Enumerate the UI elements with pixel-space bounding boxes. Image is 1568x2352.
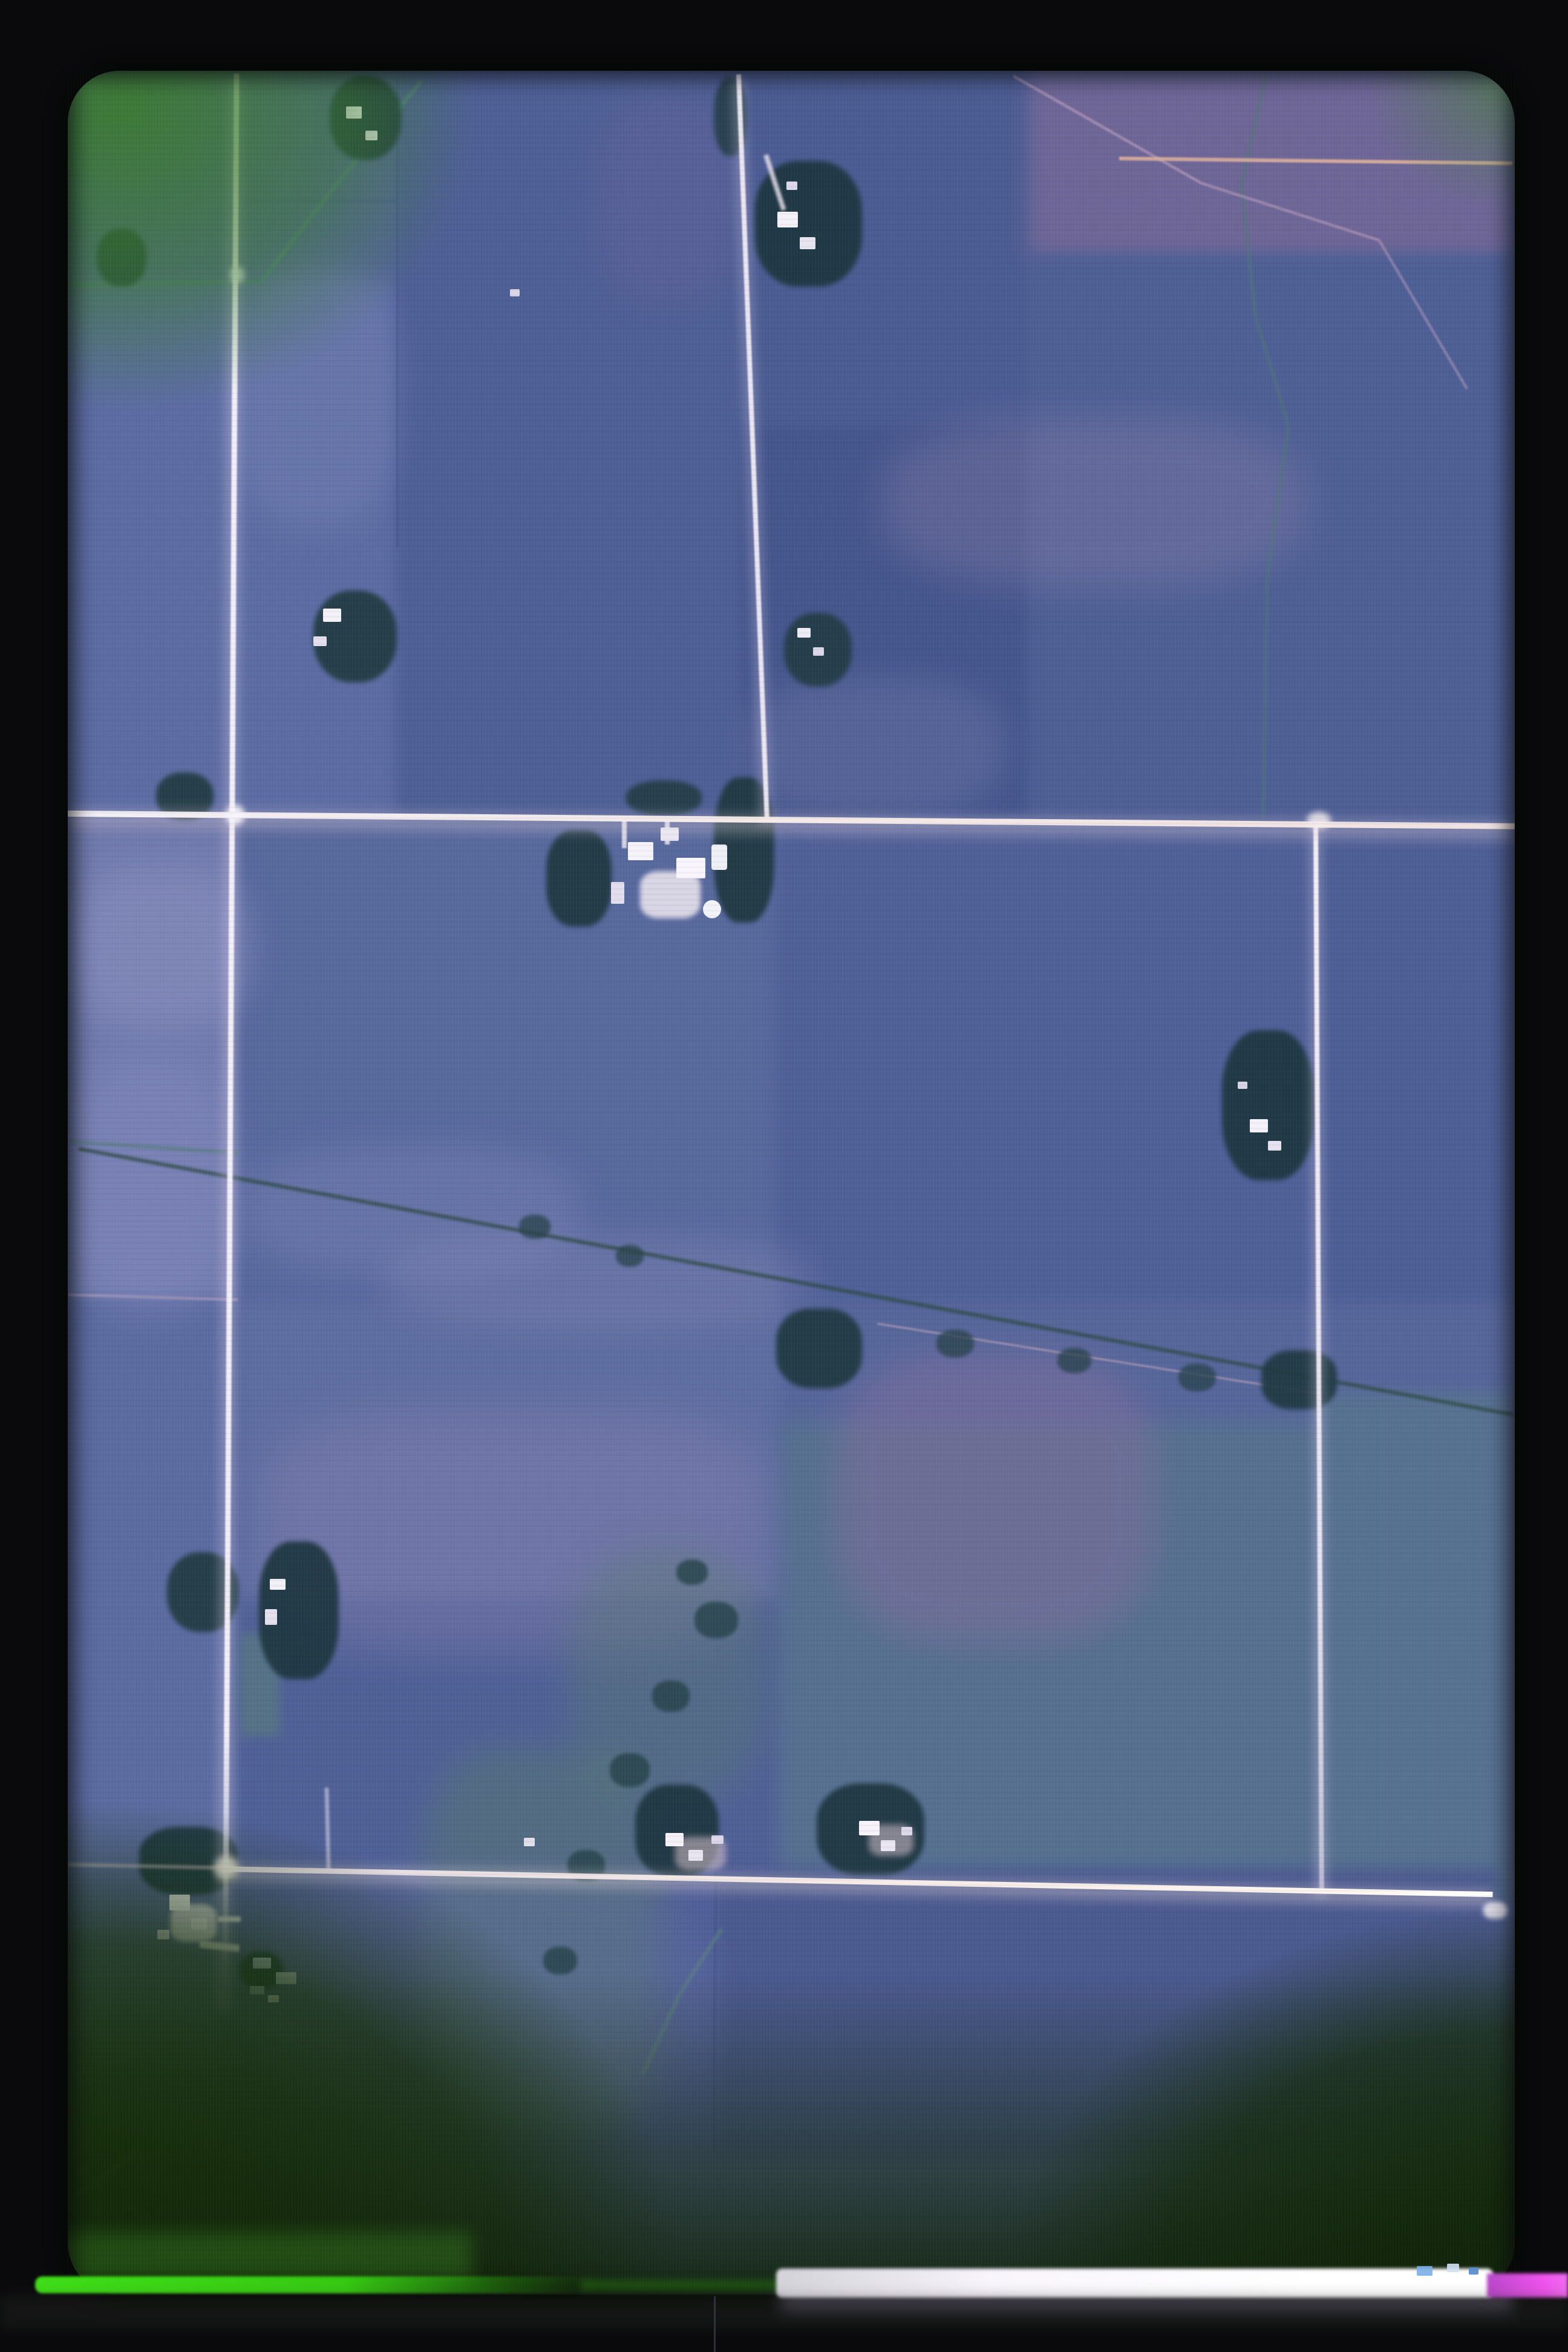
- mount-slit-line: [714, 2296, 716, 2352]
- trees-corr-3: [610, 1753, 650, 1787]
- cloud-mid: [387, 1234, 811, 1325]
- field-right-band: [1319, 821, 1514, 1302]
- light-approach: [744, 678, 1004, 817]
- filmedge-speck-blue-2: [1447, 2264, 1459, 2272]
- trees-corr-6: [676, 1560, 708, 1585]
- trees-corr-1: [694, 1602, 738, 1638]
- aerial-photo-frame: [68, 71, 1515, 2295]
- trees-diag-d3: [936, 1330, 974, 1357]
- junction-west-mid: [226, 805, 244, 825]
- mount-wedge-below: [0, 2295, 1568, 2329]
- cloud-left-2: [73, 1053, 230, 1313]
- farm-right-bldg-2: [1268, 1141, 1281, 1151]
- corridor-base2: [569, 1549, 768, 1803]
- filmedge-strip-magenta: [1487, 2273, 1568, 2298]
- farm-main-silo: [711, 844, 727, 870]
- farm-2-bldg-2: [800, 237, 815, 249]
- filmedge-strip-green-dim: [581, 2279, 780, 2292]
- farm-main-house: [676, 858, 705, 878]
- trees-diag-d2: [616, 1245, 644, 1267]
- slide-canvas: [0, 0, 1568, 2352]
- pink-topright: [883, 417, 1307, 587]
- farm-5-bldg-1: [797, 628, 811, 638]
- vignette-topleft: [68, 71, 733, 645]
- driveway-farm4a: [622, 820, 627, 848]
- trees-farm-main-n: [626, 780, 702, 815]
- trees-farm-2: [754, 161, 862, 287]
- haze-green-left: [68, 2232, 472, 2281]
- farm-7-bldg-2: [265, 1609, 277, 1625]
- junction-east-top: [1307, 812, 1331, 829]
- filmedge-speck-blue-3: [1469, 2267, 1478, 2275]
- farm-right-bldg-1: [1250, 1119, 1268, 1132]
- trees-farm-right: [1222, 1030, 1314, 1180]
- filmedge-speck-blue-1: [1417, 2266, 1432, 2276]
- farm-right-bldg-3: [1238, 1082, 1247, 1089]
- field-teal-right: [1319, 1391, 1514, 1903]
- photo-inner: [68, 71, 1515, 2295]
- farm-2-bldg-3: [786, 181, 797, 190]
- trees-diag-d1: [519, 1215, 550, 1239]
- trees-diag-road: [1261, 1350, 1337, 1410]
- farm-5-bldg-2: [813, 647, 824, 656]
- trees-diag-d4: [1057, 1348, 1091, 1373]
- filmedge-strip-white: [776, 2269, 1493, 2298]
- mauve-center: [835, 1352, 1155, 1642]
- farm-main-barn: [628, 842, 653, 860]
- trees-diag-big: [776, 1308, 862, 1388]
- trees-corr-2: [652, 1681, 690, 1712]
- farm-main-tank: [703, 900, 721, 918]
- farm-2-bldg-1: [777, 212, 798, 227]
- farm-main-shed2: [611, 882, 624, 904]
- trees-diag-d5: [1178, 1364, 1216, 1391]
- filmedge-strip-green: [35, 2276, 598, 2293]
- vignette-topright: [1270, 71, 1515, 385]
- farm-main-shed: [661, 828, 679, 841]
- trees-farm-main-w: [546, 830, 612, 927]
- farm-7-bldg-1: [270, 1579, 286, 1590]
